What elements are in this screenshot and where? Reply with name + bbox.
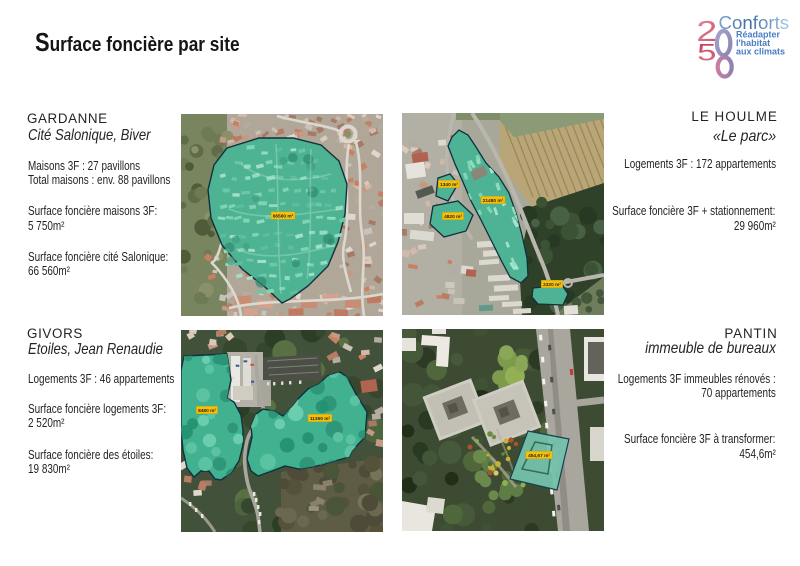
svg-text:4820 m²: 4820 m² xyxy=(444,214,462,220)
svg-text:11360 m²: 11360 m² xyxy=(310,416,331,422)
svg-text:454,67 m²: 454,67 m² xyxy=(528,453,550,459)
svg-text:1340 m²: 1340 m² xyxy=(440,182,458,188)
svg-text:5: 5 xyxy=(697,40,716,66)
svg-text:21480 m²: 21480 m² xyxy=(483,198,504,204)
svg-text:aux climats: aux climats xyxy=(736,47,785,57)
svg-text:66560 m²: 66560 m² xyxy=(273,213,294,219)
svg-text:2320 m²: 2320 m² xyxy=(543,282,561,288)
svg-text:8480 m²: 8480 m² xyxy=(198,408,216,414)
